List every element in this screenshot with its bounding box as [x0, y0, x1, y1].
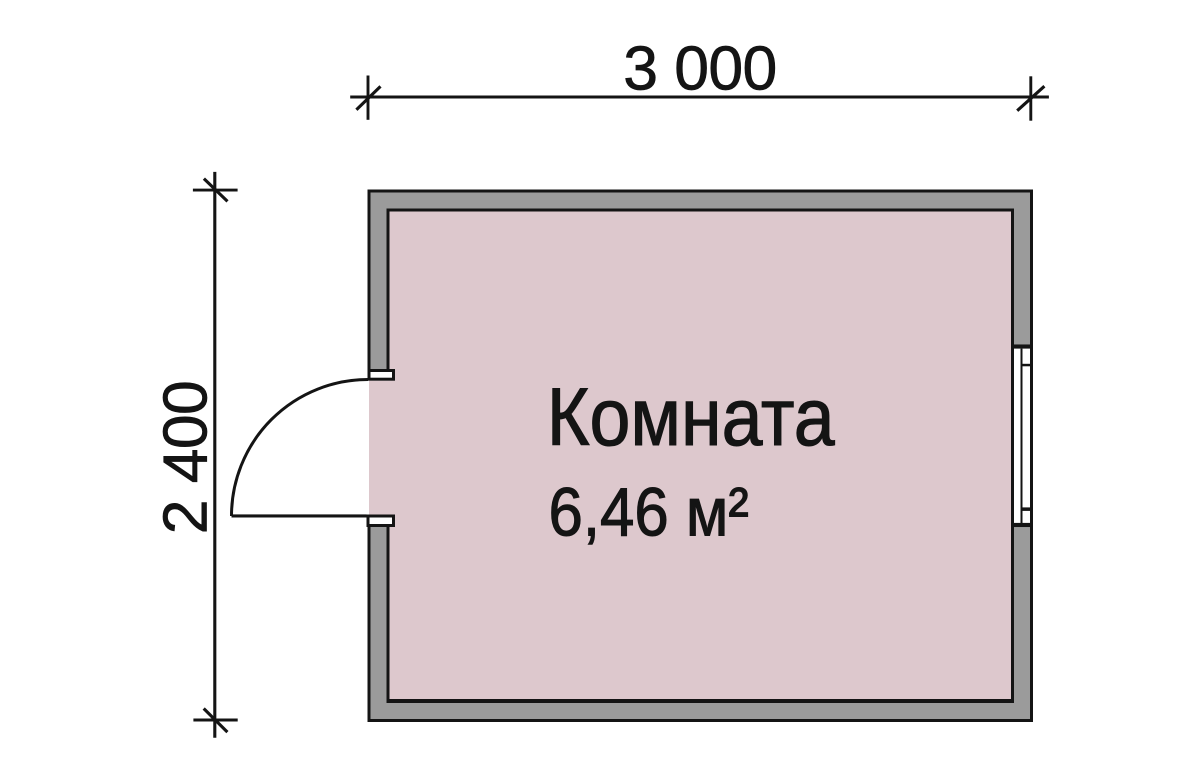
svg-text:Комната: Комната [547, 370, 836, 463]
svg-text:3 000: 3 000 [623, 34, 776, 104]
svg-text:6,46 м²: 6,46 м² [549, 473, 749, 550]
svg-text:2 400: 2 400 [151, 381, 221, 534]
